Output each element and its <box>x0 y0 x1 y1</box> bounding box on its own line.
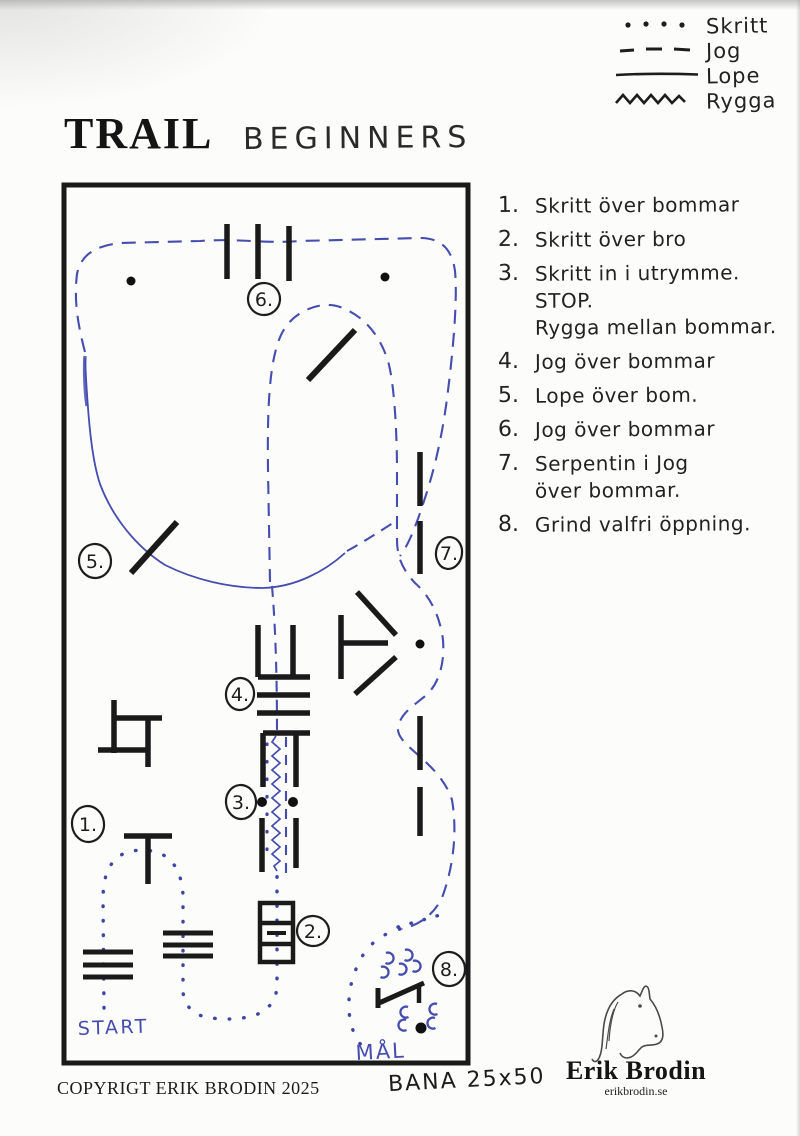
course-marker-4: 4. <box>224 676 256 711</box>
course-marker-6: 6. <box>247 282 282 317</box>
ground-pole-set-left <box>83 952 133 977</box>
course-marker-8: 8. <box>431 950 466 987</box>
marker-label: 4. <box>231 684 249 706</box>
marker-label: 8. <box>440 959 458 981</box>
fan-pole-group <box>341 592 396 694</box>
arena-border <box>64 185 468 1063</box>
course-marker-2: 2. <box>296 914 331 947</box>
top-diagonal-pole <box>308 330 355 380</box>
jog-path-tail <box>347 523 393 551</box>
brand-name: Erik Brodin <box>556 1056 716 1086</box>
rygga-zigzag <box>272 736 280 871</box>
course-marker-1: 1. <box>70 804 107 844</box>
jog-path-corridor <box>272 586 277 731</box>
course-marker-7: 7. <box>434 535 464 570</box>
ground-pole-set-mid <box>163 933 213 956</box>
course-markers: 1. 2. 3. 4. 5. 6. 7. 8. <box>70 282 467 988</box>
marker-label: 6. <box>255 289 273 311</box>
skritt-path-gate-row <box>398 915 440 927</box>
horse-head-spacer <box>556 980 716 1060</box>
marker-label: 1. <box>79 814 97 836</box>
marker-label: 3. <box>232 792 250 814</box>
copyright-text: COPYRIGT ERIK BRODIN 2025 <box>57 1078 320 1099</box>
obstacle-6-poles <box>227 224 289 281</box>
obstacle-5-pole <box>131 522 177 573</box>
course-map: 1. 2. 3. 4. 5. 6. 7. 8. S <box>0 0 800 1136</box>
obstacle-layer <box>83 224 424 1008</box>
skritt-path-goal <box>349 929 400 1046</box>
brand-website: erikbrodin.se <box>556 1084 716 1099</box>
brand-logo: Erik Brodin erikbrodin.se <box>556 980 716 1099</box>
marker-label: 7. <box>440 543 458 565</box>
course-marker-5: 5. <box>77 542 112 579</box>
goal-label: MÅL <box>355 1036 406 1065</box>
gate-arc-marks-upper <box>381 950 421 978</box>
marker-label: 2. <box>304 921 322 943</box>
obstacle-2-bridge <box>260 903 293 962</box>
jog-path-top-loop <box>76 238 456 556</box>
marker-label: 5. <box>86 551 104 573</box>
obstacle-4-poles <box>257 625 310 713</box>
course-marker-3: 3. <box>225 784 258 820</box>
obstacle-1-poles <box>98 700 172 884</box>
lope-path <box>85 358 345 588</box>
start-label: START <box>77 1016 149 1040</box>
obstacle-8-gate <box>378 983 424 1008</box>
